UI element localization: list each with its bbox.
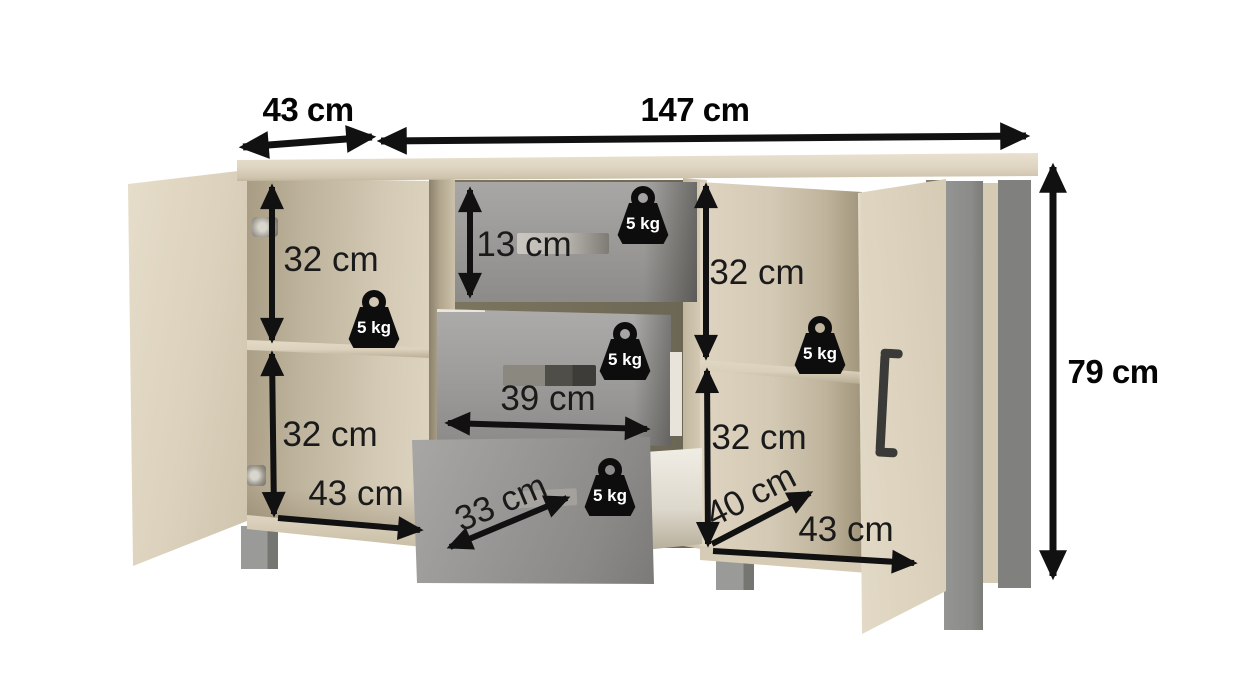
arrow-total-width (381, 136, 1026, 141)
door-handle-arm (880, 348, 902, 358)
dim-label-right-upper-section: 32 cm (709, 253, 804, 293)
weight-label: 5 kg (616, 203, 670, 244)
door-handle-arm (875, 447, 897, 457)
weight-icon-top-drawer: 5 kg (616, 186, 670, 244)
dim-label-height: 79 cm (1067, 353, 1158, 391)
dim-label-right-lower-section: 32 cm (711, 418, 806, 458)
weight-icon-left-shelf: 5 kg (347, 290, 401, 348)
top-panel (237, 150, 1038, 182)
dim-label-total-width: 147 cm (641, 91, 750, 129)
dim-label-top-drawer-height: 13 cm (476, 225, 571, 265)
door-hinge-icon (252, 217, 278, 237)
weight-label: 5 kg (583, 475, 637, 516)
door-hinge-icon (247, 465, 266, 486)
middle-drawer-side (670, 352, 682, 436)
left-door-panel (126, 170, 247, 568)
dim-label-drawer-width: 39 cm (500, 379, 595, 419)
weight-icon-middle-drawer: 5 kg (598, 322, 652, 380)
right-front-leg (944, 181, 983, 630)
right-back-leg (998, 180, 1031, 588)
weight-icon-right-shelf: 5 kg (793, 316, 847, 374)
dim-label-top-left-width: 43 cm (262, 91, 353, 129)
door-handle-bar (875, 352, 889, 452)
dim-label-right-section-width: 43 cm (798, 510, 893, 550)
front-left-leg (241, 526, 278, 569)
arrow-top-left-width (243, 137, 372, 147)
weight-label: 5 kg (347, 307, 401, 348)
weight-label: 5 kg (598, 339, 652, 380)
weight-label: 5 kg (793, 333, 847, 374)
weight-icon-bottom-drawer: 5 kg (583, 458, 637, 516)
dim-label-left-lower-section: 32 cm (282, 415, 377, 455)
dim-label-left-upper-section: 32 cm (283, 240, 378, 280)
bottom-drawer-box-interior (645, 448, 702, 550)
dim-label-left-section-depth: 43 cm (308, 474, 403, 514)
right-side-panel (983, 183, 998, 583)
furniture-dimension-diagram: 5 kg 5 kg 5 kg 5 kg 5 kg (0, 0, 1251, 700)
